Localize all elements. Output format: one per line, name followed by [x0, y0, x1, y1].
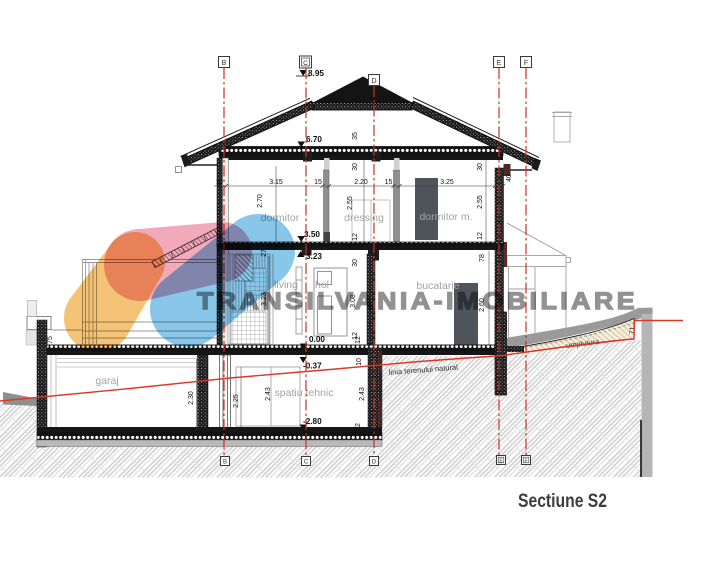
svg-text:garaj: garaj — [95, 375, 118, 387]
svg-text:C: C — [303, 60, 308, 67]
svg-text:15: 15 — [385, 179, 393, 186]
svg-text:2.30: 2.30 — [188, 391, 195, 405]
svg-text:40: 40 — [217, 179, 224, 187]
svg-text:12: 12 — [352, 233, 359, 241]
svg-text:12: 12 — [355, 336, 362, 344]
svg-text:10: 10 — [356, 358, 363, 366]
svg-text:spatiu tehnic: spatiu tehnic — [275, 387, 334, 399]
svg-text:6.70: 6.70 — [306, 135, 322, 144]
svg-text:2.20: 2.20 — [354, 179, 368, 186]
svg-text:F: F — [524, 458, 527, 464]
svg-text:2.55: 2.55 — [347, 196, 354, 210]
svg-text:D: D — [371, 78, 376, 85]
svg-text:E: E — [497, 60, 502, 67]
svg-text:D: D — [372, 460, 377, 466]
svg-text:F: F — [524, 60, 528, 67]
svg-text:2.70: 2.70 — [257, 194, 264, 208]
svg-text:B: B — [223, 460, 227, 466]
svg-text:78: 78 — [479, 254, 486, 262]
svg-text:75: 75 — [47, 336, 54, 344]
svg-text:0.00: 0.00 — [309, 335, 325, 344]
svg-text:40: 40 — [506, 174, 513, 182]
svg-text:2.43: 2.43 — [265, 387, 272, 401]
svg-text:dressing: dressing — [344, 212, 384, 224]
svg-text:2.25: 2.25 — [233, 394, 240, 408]
svg-text:12: 12 — [477, 232, 484, 240]
svg-text:C: C — [304, 460, 309, 466]
svg-text:B: B — [222, 60, 227, 67]
svg-text:30: 30 — [352, 259, 359, 267]
svg-text:Sectiune S2: Sectiune S2 — [518, 491, 607, 512]
svg-text:2.55: 2.55 — [477, 195, 484, 209]
svg-text:2.43: 2.43 — [359, 387, 366, 401]
svg-text:TRANSILVANIA-IMOBILIARE: TRANSILVANIA-IMOBILIARE — [197, 288, 638, 315]
svg-text:12: 12 — [355, 423, 362, 431]
svg-text:3.25: 3.25 — [440, 179, 454, 186]
svg-text:30: 30 — [477, 163, 484, 171]
svg-text:15: 15 — [314, 179, 322, 186]
svg-text:30: 30 — [352, 163, 359, 171]
svg-text:dormitor m.: dormitor m. — [419, 211, 472, 223]
svg-text:3.23: 3.23 — [306, 252, 322, 261]
svg-text:35: 35 — [352, 132, 359, 140]
svg-text:8.95: 8.95 — [308, 69, 324, 78]
